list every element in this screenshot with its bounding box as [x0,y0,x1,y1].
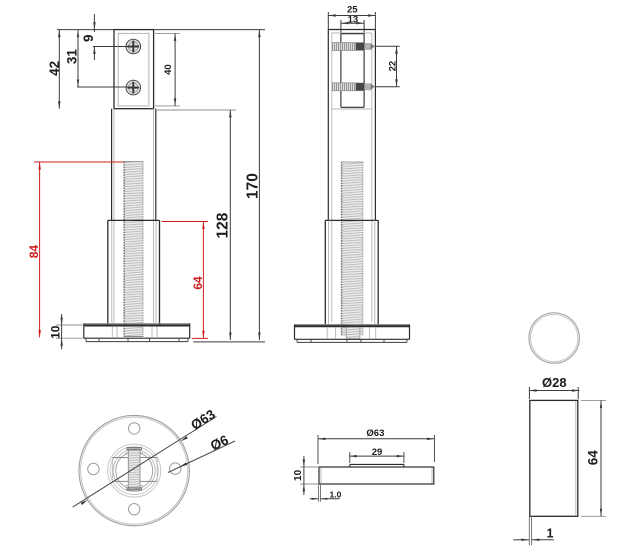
svg-text:128: 128 [214,212,231,238]
svg-text:13: 13 [348,14,359,25]
svg-text:64: 64 [191,276,205,290]
svg-text:9: 9 [81,35,96,43]
svg-text:40: 40 [163,64,174,75]
svg-text:Ø63: Ø63 [366,428,384,439]
svg-text:10: 10 [49,325,63,339]
svg-text:84: 84 [27,245,41,259]
svg-text:10: 10 [293,469,304,481]
svg-text:22: 22 [388,61,399,72]
svg-text:29: 29 [372,447,383,458]
svg-text:1: 1 [547,526,554,540]
svg-text:Ø28: Ø28 [542,375,567,390]
svg-text:64: 64 [586,450,601,466]
svg-text:31: 31 [64,49,79,65]
svg-text:42: 42 [47,61,62,76]
svg-text:170: 170 [245,173,262,199]
svg-text:1.0: 1.0 [329,489,341,499]
